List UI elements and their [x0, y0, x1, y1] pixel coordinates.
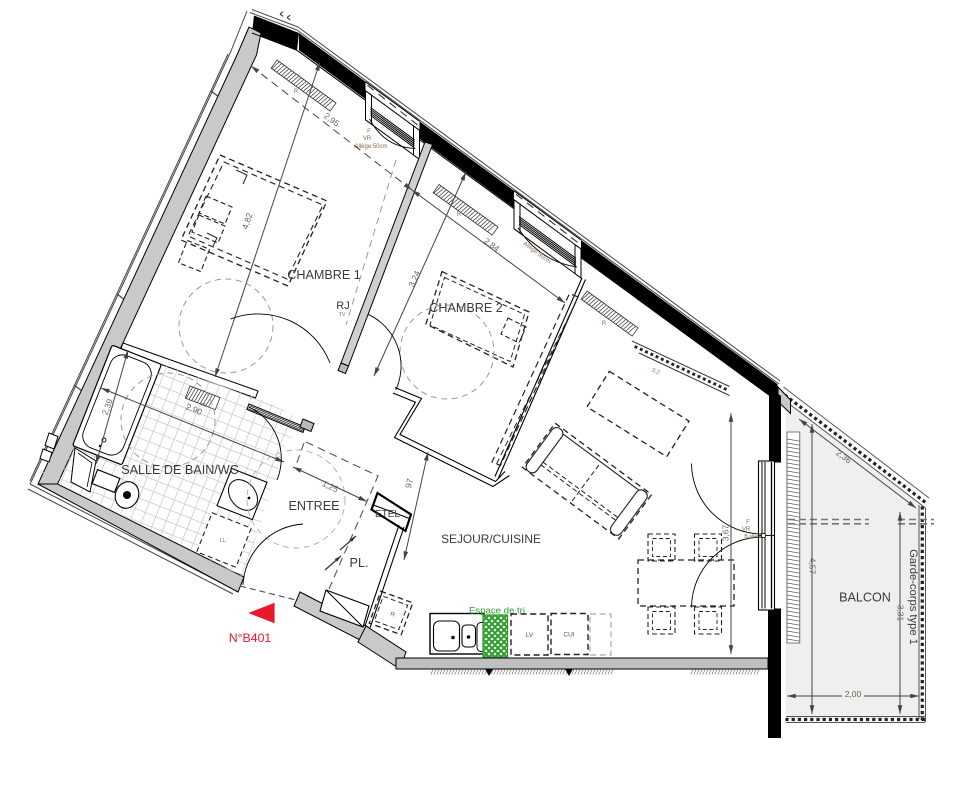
svg-text:R: R: [457, 212, 462, 218]
svg-text:4,57: 4,57: [808, 558, 818, 575]
svg-text:VR: VR: [363, 136, 372, 142]
svg-text:LV: LV: [526, 632, 534, 639]
svg-text:CUI: CUI: [563, 632, 574, 639]
svg-text:CHAMBRE 1: CHAMBRE 1: [287, 268, 360, 282]
svg-text:RJ: RJ: [336, 300, 349, 312]
svg-text:VR: VR: [742, 527, 751, 533]
svg-text:F: F: [367, 129, 371, 135]
svg-text:N°B401: N°B401: [229, 631, 272, 645]
svg-text:TV: TV: [338, 312, 345, 318]
svg-text:LL: LL: [220, 538, 226, 544]
svg-text:Garde-corps type 1: Garde-corps type 1: [907, 549, 919, 645]
svg-text:B.alleg: B.alleg: [744, 534, 760, 540]
svg-text:SALLE DE BAIN/WC: SALLE DE BAIN/WC: [121, 463, 239, 477]
svg-text:F: F: [746, 520, 750, 526]
svg-text:3,31: 3,31: [896, 605, 906, 622]
svg-text:R: R: [294, 89, 299, 95]
svg-text:3,67: 3,67: [721, 524, 731, 541]
svg-text:SEJOUR/CUISINE: SEJOUR/CUISINE: [441, 532, 541, 546]
svg-text:CHAMBRE 2: CHAMBRE 2: [429, 301, 502, 315]
svg-text:R: R: [602, 321, 607, 327]
svg-text:PL.: PL.: [350, 556, 369, 570]
svg-text:BALCON: BALCON: [839, 591, 891, 605]
svg-text:2,00: 2,00: [845, 689, 862, 699]
svg-text:Espace de tri: Espace de tri: [469, 606, 525, 617]
svg-text:ENTREE: ENTREE: [288, 499, 339, 513]
svg-text:ETEL: ETEL: [375, 509, 400, 520]
